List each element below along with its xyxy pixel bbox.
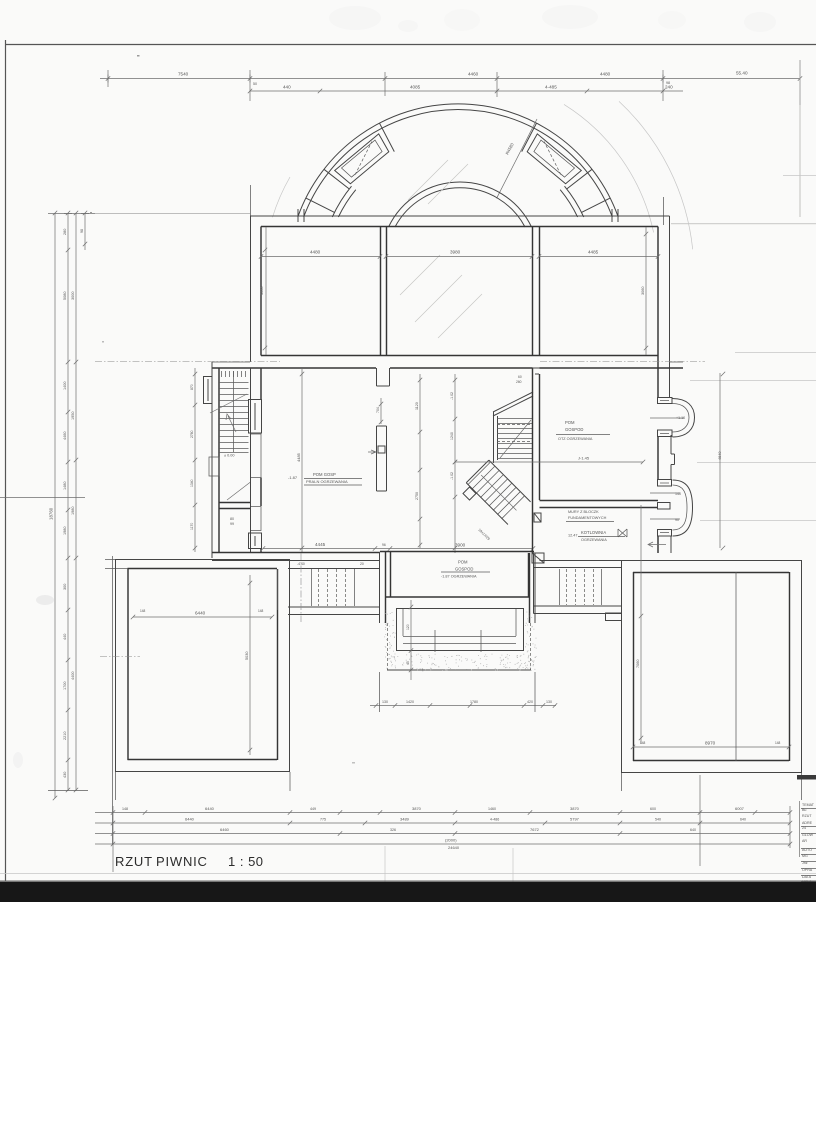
svg-text:540: 540 <box>655 818 661 822</box>
svg-text:704: 704 <box>376 407 380 413</box>
svg-text:4485: 4485 <box>296 452 301 462</box>
svg-text:3870: 3870 <box>570 806 580 811</box>
svg-text:440: 440 <box>63 634 67 640</box>
svg-text:7540: 7540 <box>178 72 189 77</box>
svg-text:GOSPOD: GOSPOD <box>565 427 583 432</box>
svg-text:-1.87 OGRZEWANIA: -1.87 OGRZEWANIA <box>441 575 477 579</box>
svg-text:300: 300 <box>63 584 67 590</box>
svg-text:2780: 2780 <box>190 430 194 438</box>
svg-text:ADRE: ADRE <box>802 821 813 825</box>
svg-text:5797: 5797 <box>570 817 580 822</box>
svg-text:POM: POM <box>458 560 468 565</box>
svg-text:RZUT: RZUT <box>802 814 812 818</box>
svg-text:98: 98 <box>666 81 670 85</box>
svg-text:430: 430 <box>63 772 67 778</box>
svg-text:3980: 3980 <box>450 250 461 255</box>
svg-text:1400: 1400 <box>63 382 67 390</box>
svg-text:90: 90 <box>675 518 679 522</box>
svg-text:6440: 6440 <box>205 806 215 811</box>
svg-text:4460: 4460 <box>63 432 67 440</box>
svg-text:80: 80 <box>230 517 234 521</box>
svg-text:420: 420 <box>527 700 533 704</box>
svg-text:1780: 1780 <box>470 700 478 704</box>
svg-text:1480: 1480 <box>63 482 67 490</box>
svg-text:240: 240 <box>665 85 673 90</box>
svg-text:7060: 7060 <box>636 660 640 668</box>
svg-text:45: 45 <box>406 661 410 665</box>
svg-text:3000: 3000 <box>71 292 75 300</box>
svg-text:2750: 2750 <box>415 492 419 500</box>
svg-text:8970: 8970 <box>705 741 716 746</box>
svg-text:1170: 1170 <box>190 523 194 530</box>
svg-text:AR: AR <box>802 839 807 843</box>
svg-text:1420: 1420 <box>406 700 414 704</box>
svg-text:4460: 4460 <box>468 72 479 77</box>
svg-text:-1.87: -1.87 <box>288 475 298 480</box>
svg-text:6440: 6440 <box>185 817 195 822</box>
svg-text:POM GOSP: POM GOSP <box>313 472 336 477</box>
svg-text:4-486: 4-486 <box>490 818 499 822</box>
svg-text:130: 130 <box>546 700 552 704</box>
svg-text:98: 98 <box>80 229 84 233</box>
svg-text:326: 326 <box>390 828 396 832</box>
svg-text:OGRZEWANIA: OGRZEWANIA <box>581 538 607 542</box>
svg-text:4445: 4445 <box>315 542 326 547</box>
svg-text:± 0.00: ± 0.00 <box>224 454 235 458</box>
svg-text:PIWNIC: PIWNIC <box>156 854 208 869</box>
svg-text:140: 140 <box>675 492 681 496</box>
svg-text:6460: 6460 <box>220 827 230 832</box>
svg-text:3060: 3060 <box>260 287 264 295</box>
svg-text:6007: 6007 <box>735 806 745 811</box>
svg-text:148: 148 <box>258 609 264 613</box>
svg-text:96: 96 <box>382 543 386 547</box>
svg-text:5080: 5080 <box>63 292 67 300</box>
svg-text:640: 640 <box>690 828 696 832</box>
svg-text:1980: 1980 <box>63 527 67 535</box>
svg-text:2210: 2210 <box>63 732 67 740</box>
svg-text:1340: 1340 <box>190 479 194 487</box>
svg-text:148: 148 <box>640 741 646 745</box>
svg-text:148: 148 <box>140 609 146 613</box>
svg-text:600: 600 <box>650 807 656 811</box>
svg-text:J-1.45: J-1.45 <box>578 456 590 461</box>
svg-text:(2000): (2000) <box>445 838 457 843</box>
svg-text:FUNDAMENTOWYCH: FUNDAMENTOWYCH <box>568 516 607 520</box>
svg-text:280: 280 <box>63 229 67 235</box>
svg-text:12.47: 12.47 <box>568 534 578 538</box>
svg-text:4640: 4640 <box>718 452 722 460</box>
svg-text:260: 260 <box>516 380 522 384</box>
svg-text:1 : 50: 1 : 50 <box>228 854 264 869</box>
svg-text:148: 148 <box>122 807 128 811</box>
svg-text:-1.02: -1.02 <box>450 472 454 480</box>
svg-text:4480: 4480 <box>310 250 321 255</box>
svg-text:GOSPOD: GOSPOD <box>455 567 473 572</box>
svg-text:870: 870 <box>190 384 194 390</box>
svg-text:640: 640 <box>740 818 746 822</box>
svg-text:120: 120 <box>406 624 410 630</box>
svg-text:4485: 4485 <box>588 250 599 255</box>
svg-text:449: 449 <box>310 807 316 811</box>
svg-text:55.40: 55.40 <box>736 71 748 76</box>
svg-text:MURY Z BLOCZK: MURY Z BLOCZK <box>568 510 599 514</box>
svg-text:POM: POM <box>565 420 575 425</box>
svg-text:20: 20 <box>360 562 364 566</box>
svg-text:1980: 1980 <box>71 507 75 515</box>
svg-text:RZUT: RZUT <box>115 854 153 869</box>
svg-text:KOTLOWNIA: KOTLOWNIA <box>581 530 606 535</box>
svg-text:18760: 18760 <box>49 507 54 520</box>
svg-text:4-485: 4-485 <box>545 85 557 90</box>
svg-text:-1.02: -1.02 <box>450 392 454 400</box>
svg-text:PRALN OGRZEWANIA: PRALN OGRZEWANIA <box>306 479 348 484</box>
svg-text:5030: 5030 <box>245 652 249 660</box>
svg-text:99: 99 <box>230 522 234 526</box>
svg-text:1120: 1120 <box>415 402 419 410</box>
svg-text:4085: 4085 <box>410 85 421 90</box>
svg-text:4400: 4400 <box>71 672 75 680</box>
svg-text:1460: 1460 <box>488 807 496 811</box>
svg-text:4480: 4480 <box>600 72 611 77</box>
svg-text:50: 50 <box>253 82 257 86</box>
svg-text:R4580: R4580 <box>504 142 515 156</box>
svg-text:130: 130 <box>382 700 388 704</box>
svg-text:3489: 3489 <box>400 817 410 822</box>
svg-text:775: 775 <box>320 818 326 822</box>
svg-text:7672: 7672 <box>530 827 540 832</box>
svg-text:19x17/29: 19x17/29 <box>477 528 490 541</box>
svg-text:24640: 24640 <box>448 845 460 850</box>
svg-text:1950: 1950 <box>71 412 75 420</box>
svg-text:3870: 3870 <box>412 806 422 811</box>
svg-text:440: 440 <box>283 85 291 90</box>
svg-text:OTZ OGRZEWANIA: OTZ OGRZEWANIA <box>558 437 593 441</box>
svg-text:1240: 1240 <box>450 432 454 440</box>
svg-text:6440: 6440 <box>195 611 206 616</box>
svg-text:148: 148 <box>775 741 781 745</box>
svg-text:TEMAT: TEMAT <box>802 803 815 807</box>
svg-text:60: 60 <box>518 375 522 379</box>
svg-text:3060: 3060 <box>641 287 645 295</box>
svg-text:1700: 1700 <box>63 682 67 690</box>
